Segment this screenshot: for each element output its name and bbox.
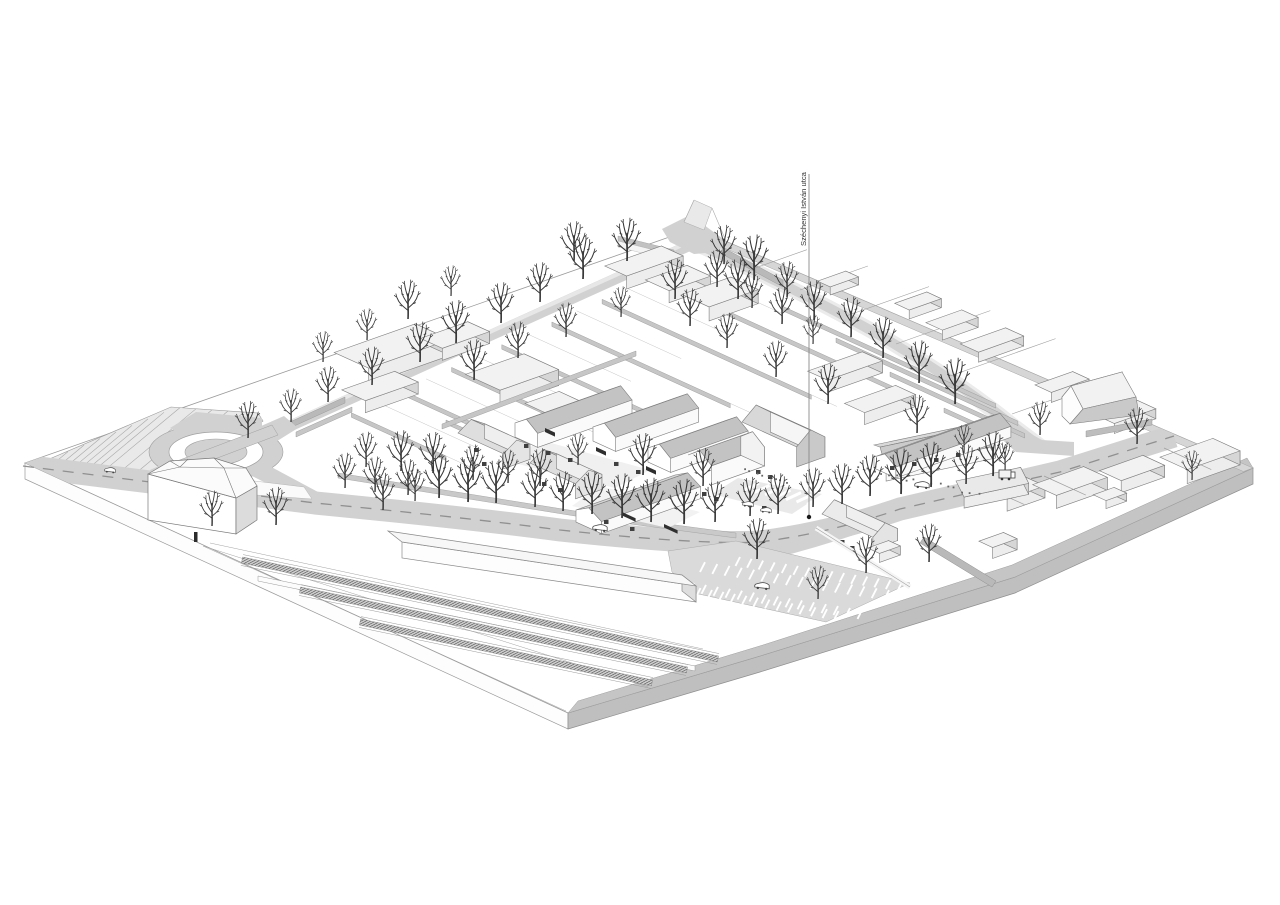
svg-text:Széchenyi István utca: Széchenyi István utca [799, 171, 808, 246]
